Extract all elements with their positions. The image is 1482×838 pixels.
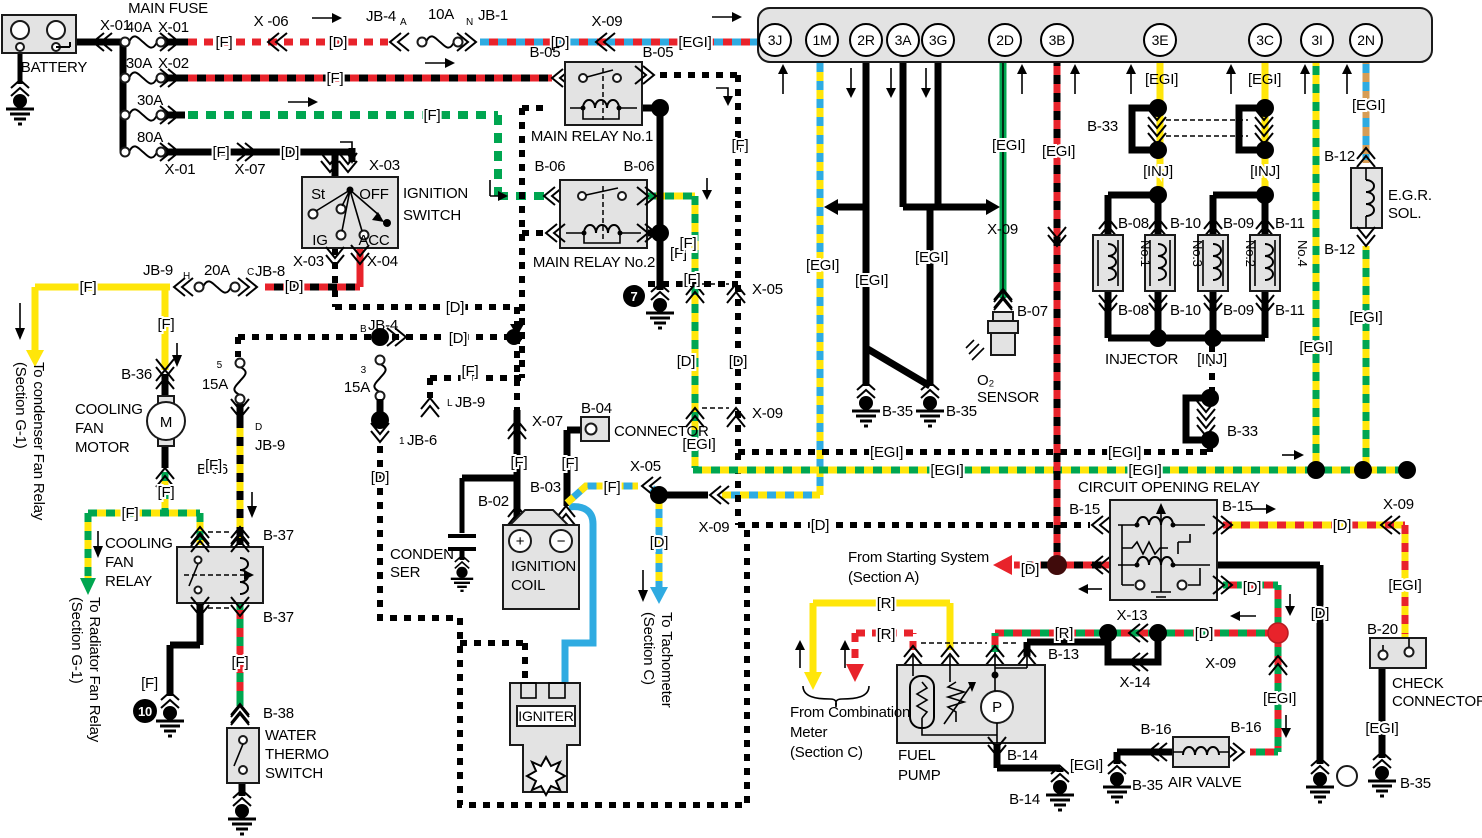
b15-label: B-15 bbox=[1069, 501, 1100, 518]
b12-label: B-12 bbox=[1324, 241, 1355, 258]
circuit-opening-relay-label: CIRCUIT OPENING RELAY bbox=[1078, 479, 1260, 496]
wiring-diagram: BATTERY X-01 MAIN FUSE 40A X-01 [F] X -0… bbox=[0, 0, 1482, 838]
tag-d: [D] bbox=[281, 144, 300, 161]
tag-r: [R] bbox=[877, 626, 896, 643]
b13-label: B-13 bbox=[1048, 646, 1079, 663]
o2-sensor-body bbox=[991, 333, 1015, 355]
b16-label: B-16 bbox=[1141, 721, 1172, 738]
tag-egi: [EGI] bbox=[1352, 97, 1385, 114]
fan-motor-label3: MOTOR bbox=[75, 439, 130, 456]
tag-f: [F] bbox=[158, 484, 175, 501]
note-starting2: (Section A) bbox=[848, 569, 919, 586]
ecu-pin-3c: 3C bbox=[1256, 32, 1274, 48]
tag-f: [F] bbox=[511, 454, 528, 471]
fan-relay-label1: COOLING bbox=[105, 535, 173, 552]
tag-egi: [EGI] bbox=[1388, 577, 1421, 594]
note-tachometer1: To Tachometer bbox=[658, 612, 675, 708]
tag-d: [D] bbox=[677, 353, 696, 370]
b11-label: B-11 bbox=[1275, 215, 1305, 232]
note-starting1: From Starting System bbox=[848, 549, 989, 566]
o2-label: O₂ bbox=[977, 372, 994, 389]
b35-label: B-35 bbox=[882, 403, 913, 420]
jb9-label: JB-9 bbox=[455, 394, 485, 411]
b37-label: B-37 bbox=[263, 527, 294, 544]
jb9-label: JB-9 bbox=[255, 437, 285, 454]
b36-label: B-36 bbox=[121, 366, 152, 383]
jb6-label: JB-6 bbox=[407, 432, 437, 449]
fuse-30a: 30A bbox=[137, 92, 163, 109]
tag-f: [F] bbox=[684, 271, 701, 288]
x01-label: X-01 bbox=[165, 161, 196, 178]
tag-d: [D] bbox=[1243, 579, 1262, 596]
injector-no3: No.3 bbox=[1190, 240, 1205, 267]
pin-h: H bbox=[183, 271, 190, 282]
x05-label: X-05 bbox=[630, 458, 661, 475]
main-fuse-label: MAIN FUSE bbox=[128, 0, 208, 17]
b15-label: B-15 bbox=[1222, 498, 1253, 515]
jb8-label: JB-8 bbox=[255, 263, 285, 280]
check-connector-label2: CONNECTOR bbox=[1392, 693, 1482, 710]
tag-f: [F] bbox=[562, 455, 579, 472]
tag-d: [D] bbox=[729, 353, 748, 370]
fan-relay-label3: RELAY bbox=[105, 573, 152, 590]
fuse-20a: 20A bbox=[204, 262, 230, 279]
b05-label: B-05 bbox=[643, 44, 674, 61]
sw-ig: IG bbox=[312, 232, 327, 249]
pin-a: A bbox=[400, 17, 407, 28]
fuse-10a: 10A bbox=[428, 6, 454, 23]
b04-label: B-04 bbox=[581, 400, 612, 417]
ignition-switch-label2: SWITCH bbox=[403, 207, 461, 224]
tag-f: [F] bbox=[158, 316, 175, 333]
tag-f: [F] bbox=[732, 137, 749, 154]
red-junction bbox=[1268, 623, 1288, 643]
note-10: 10 bbox=[138, 704, 152, 719]
tag-f: [F] bbox=[680, 235, 697, 252]
note-radiator-relay1: To Radiator Fan Relay bbox=[86, 597, 103, 743]
x14-label: X-14 bbox=[1120, 674, 1151, 691]
injector-label: INJECTOR bbox=[1105, 351, 1178, 368]
ecu-pin-3g: 3G bbox=[929, 32, 947, 48]
air-valve-label: AIR VALVE bbox=[1168, 774, 1242, 791]
b14-label: B-14 bbox=[1007, 747, 1038, 764]
tag-egi: [EGI] bbox=[1128, 462, 1161, 479]
tag-egi: [EGI] bbox=[1349, 309, 1382, 326]
wire-relay-ground bbox=[170, 603, 200, 696]
green-arrowhead bbox=[80, 578, 96, 595]
tag-d: [D] bbox=[329, 34, 348, 51]
tag-r: [R] bbox=[877, 595, 896, 612]
minus-sign: − bbox=[557, 533, 566, 550]
ecu-pin-3e: 3E bbox=[1152, 32, 1169, 48]
pin-l: L bbox=[447, 398, 453, 409]
plus-sign: + bbox=[516, 533, 525, 550]
tag-egi: [EGI] bbox=[678, 34, 711, 51]
ecu-pin-3a: 3A bbox=[895, 32, 913, 48]
tag-d: [D] bbox=[285, 278, 304, 295]
sw-st: St bbox=[311, 186, 326, 203]
b35-label: B-35 bbox=[946, 403, 977, 420]
tag-egi: [EGI] bbox=[1042, 143, 1075, 160]
b12-label: B-12 bbox=[1324, 148, 1355, 165]
o2-sensor-label: SENSOR bbox=[977, 389, 1040, 406]
pin-c: C bbox=[247, 267, 254, 278]
pin-d: D bbox=[255, 422, 262, 433]
b33-label: B-33 bbox=[1087, 118, 1118, 135]
b35-label: B-35 bbox=[1132, 777, 1163, 794]
blue-arrowhead bbox=[650, 587, 668, 604]
x04-label: X-04 bbox=[367, 253, 398, 270]
component-layer bbox=[2, 8, 1432, 834]
condenser-label2: SER bbox=[390, 564, 421, 581]
tag-egi: [EGI] bbox=[915, 249, 948, 266]
b20-label: B-20 bbox=[1367, 621, 1398, 638]
fan-relay-label2: FAN bbox=[105, 554, 134, 571]
b05-label: B-05 bbox=[530, 44, 561, 61]
b33-label: B-33 bbox=[1227, 423, 1258, 440]
injector-no2: No.2 bbox=[1243, 240, 1258, 267]
b09-label: B-09 bbox=[1223, 302, 1254, 319]
pin-1: 1 bbox=[399, 436, 405, 447]
tag-egi: [EGI] bbox=[1248, 71, 1281, 88]
tag-egi: [EGI] bbox=[992, 137, 1025, 154]
main-relay2-label: MAIN RELAY No.2 bbox=[533, 254, 655, 271]
check-connector-label1: CHECK bbox=[1392, 675, 1444, 692]
tag-f: [F] bbox=[205, 457, 222, 474]
tag-d: [D] bbox=[446, 299, 465, 316]
tag-d: [D] bbox=[1311, 605, 1330, 622]
fuse-15a: 15A bbox=[202, 376, 228, 393]
b11-label: B-11 bbox=[1275, 302, 1305, 319]
b09-label: B-09 bbox=[1223, 215, 1254, 232]
dark-junction bbox=[1047, 555, 1067, 575]
distributor-icon bbox=[527, 757, 565, 795]
tag-egi: [EGI] bbox=[806, 257, 839, 274]
tag-f: [F] bbox=[462, 363, 479, 380]
x07-label: X-07 bbox=[235, 161, 266, 178]
tag-egi: [EGI] bbox=[930, 462, 963, 479]
egr-label1: E.G.R. bbox=[1388, 187, 1432, 204]
fuse-30a: 30A bbox=[126, 55, 152, 72]
b07-label: B-07 bbox=[1017, 303, 1048, 320]
tag-egi: [EGI] bbox=[1365, 720, 1398, 737]
note-combination2: Meter bbox=[790, 724, 828, 741]
x03-label: X-03 bbox=[293, 253, 324, 270]
tag-d: [D] bbox=[449, 330, 468, 347]
b16-label: B-16 bbox=[1231, 719, 1262, 736]
fuse-40a: 40A bbox=[126, 19, 152, 36]
ecu-pin-2r: 2R bbox=[857, 32, 875, 48]
egr-label2: SOL. bbox=[1388, 205, 1421, 222]
tag-egi: [EGI] bbox=[1070, 757, 1103, 774]
sw-acc: ACC bbox=[358, 232, 389, 249]
b14-label: B-14 bbox=[1009, 791, 1040, 808]
tag-f: [F] bbox=[213, 144, 230, 161]
note-combination1: From Combination bbox=[790, 704, 910, 721]
ecu-pin-3i: 3I bbox=[1311, 32, 1322, 48]
pin-n: N bbox=[466, 17, 473, 28]
tag-d: [D] bbox=[650, 534, 669, 551]
diagram-canvas: BATTERY X-01 MAIN FUSE 40A X-01 [F] X -0… bbox=[0, 0, 1482, 838]
ecu-pin-2n: 2N bbox=[1357, 32, 1375, 48]
x09-label: X-09 bbox=[987, 221, 1018, 238]
b08-label: B-08 bbox=[1118, 215, 1149, 232]
jb4-label: JB-4 bbox=[366, 8, 396, 25]
igniter-label: IGNITER bbox=[518, 708, 573, 724]
tag-egi: [EGI] bbox=[1108, 444, 1141, 461]
tag-f: [F] bbox=[604, 479, 621, 496]
x09-label: X-09 bbox=[1205, 655, 1236, 672]
tag-f: [F] bbox=[122, 505, 139, 522]
tag-egi: [EGI] bbox=[870, 444, 903, 461]
note-radiator-relay2: (Section G-1) bbox=[68, 597, 85, 684]
note-tachometer2: (Section C) bbox=[640, 612, 657, 685]
jb9-label: JB-9 bbox=[143, 262, 173, 279]
tag-inj: [INJ] bbox=[1197, 351, 1227, 368]
b10-label: B-10 bbox=[1170, 302, 1201, 319]
ecu-pin-1m: 1M bbox=[812, 32, 831, 48]
ecu-pin-3j: 3J bbox=[768, 32, 782, 48]
tag-egi: [EGI] bbox=[1145, 71, 1178, 88]
x13-label: X-13 bbox=[1117, 607, 1148, 624]
x09-label: X-09 bbox=[699, 519, 730, 536]
tag-f: [F] bbox=[141, 675, 158, 692]
fan-motor-label2: FAN bbox=[75, 420, 104, 437]
b03-label: B-03 bbox=[530, 479, 561, 496]
fuel-pump-label2: PUMP bbox=[898, 767, 941, 784]
tag-d: [D] bbox=[1333, 517, 1352, 534]
ignition-coil-label1: IGNITION bbox=[511, 558, 576, 575]
tag-egi: [EGI] bbox=[855, 272, 888, 289]
tag-d: [D] bbox=[811, 517, 830, 534]
pump-p: P bbox=[992, 699, 1002, 716]
b37-label: B-37 bbox=[263, 609, 294, 626]
b38-label: B-38 bbox=[263, 705, 294, 722]
tag-d: [D] bbox=[371, 469, 390, 486]
tag-r: [R] bbox=[1055, 625, 1074, 642]
main-relay1-label: MAIN RELAY No.1 bbox=[531, 128, 653, 145]
b06-label: B-06 bbox=[624, 158, 655, 175]
wire-ecu-grounds bbox=[836, 62, 986, 386]
empty-circle-marker bbox=[1337, 766, 1357, 786]
b35-label: B-35 bbox=[1400, 775, 1431, 792]
jb1-label: JB-1 bbox=[478, 7, 508, 24]
injector-no1: No.1 bbox=[1138, 240, 1153, 267]
tag-inj: [INJ] bbox=[1143, 163, 1173, 180]
tag-egi: [EGI] bbox=[1299, 339, 1332, 356]
tag-f: [F] bbox=[424, 107, 441, 124]
x05-label: X-05 bbox=[752, 281, 783, 298]
pin-3: 3 bbox=[361, 365, 367, 376]
fan-motor-label1: COOLING bbox=[75, 401, 143, 418]
battery-label: BATTERY bbox=[21, 59, 88, 76]
fuel-pump-label1: FUEL bbox=[898, 747, 936, 764]
b06-label: B-06 bbox=[535, 158, 566, 175]
tag-d: [D] bbox=[1021, 561, 1040, 578]
b08-label: B-08 bbox=[1118, 302, 1149, 319]
pin-5: 5 bbox=[217, 360, 223, 371]
condenser-label1: CONDEN bbox=[390, 546, 454, 563]
x02-label: X-02 bbox=[158, 55, 189, 72]
injector-no4: No.4 bbox=[1295, 240, 1310, 267]
tag-egi: [EGI] bbox=[1263, 690, 1296, 707]
note-combination3: (Section C) bbox=[790, 744, 863, 761]
b10-label: B-10 bbox=[1170, 215, 1201, 232]
ignition-coil-label2: COIL bbox=[511, 577, 545, 594]
pin-b: B bbox=[360, 324, 367, 335]
fuse-80a: 80A bbox=[137, 129, 163, 146]
note-7: 7 bbox=[630, 289, 637, 304]
sw-off: OFF bbox=[359, 186, 388, 203]
x07-label: X-07 bbox=[532, 413, 563, 430]
thermo-label3: SWITCH bbox=[265, 765, 323, 782]
ecu-pin-3b: 3B bbox=[1049, 32, 1066, 48]
tag-f: [F] bbox=[232, 654, 249, 671]
tag-f: [F] bbox=[327, 70, 344, 87]
ecu-pin-2d: 2D bbox=[996, 32, 1014, 48]
ignition-switch-label1: IGNITION bbox=[403, 185, 468, 202]
tag-inj: [INJ] bbox=[1250, 163, 1280, 180]
note-condenser-relay2: (Section G-1) bbox=[12, 362, 29, 449]
motor-m: M bbox=[160, 414, 172, 431]
x03-label: X-03 bbox=[369, 157, 400, 174]
wire-igniter-feed bbox=[460, 643, 525, 683]
x06-label: X -06 bbox=[254, 13, 289, 30]
tag-f: [F] bbox=[80, 279, 97, 296]
thermo-label1: WATER bbox=[265, 727, 317, 744]
note-condenser-relay1: To condenser Fan Relay bbox=[30, 362, 47, 521]
x09-label: X-09 bbox=[592, 13, 623, 30]
tag-f: [F] bbox=[216, 34, 233, 51]
fuse-15a: 15A bbox=[344, 379, 370, 396]
tag-d: [D] bbox=[1195, 625, 1214, 642]
x01-label: X-01 bbox=[158, 19, 189, 36]
jb4-label: JB-4 bbox=[368, 317, 398, 334]
b02-label: B-02 bbox=[478, 493, 509, 510]
red-arrowhead bbox=[993, 555, 1012, 575]
x09-label: X-09 bbox=[1383, 496, 1414, 513]
wire-yellow-fan bbox=[35, 287, 170, 370]
wire-b05-dotted bbox=[660, 75, 738, 525]
thermo-label2: THERMO bbox=[265, 746, 329, 763]
tag-egi: [EGI] bbox=[682, 436, 715, 453]
x09-label: X-09 bbox=[752, 405, 783, 422]
